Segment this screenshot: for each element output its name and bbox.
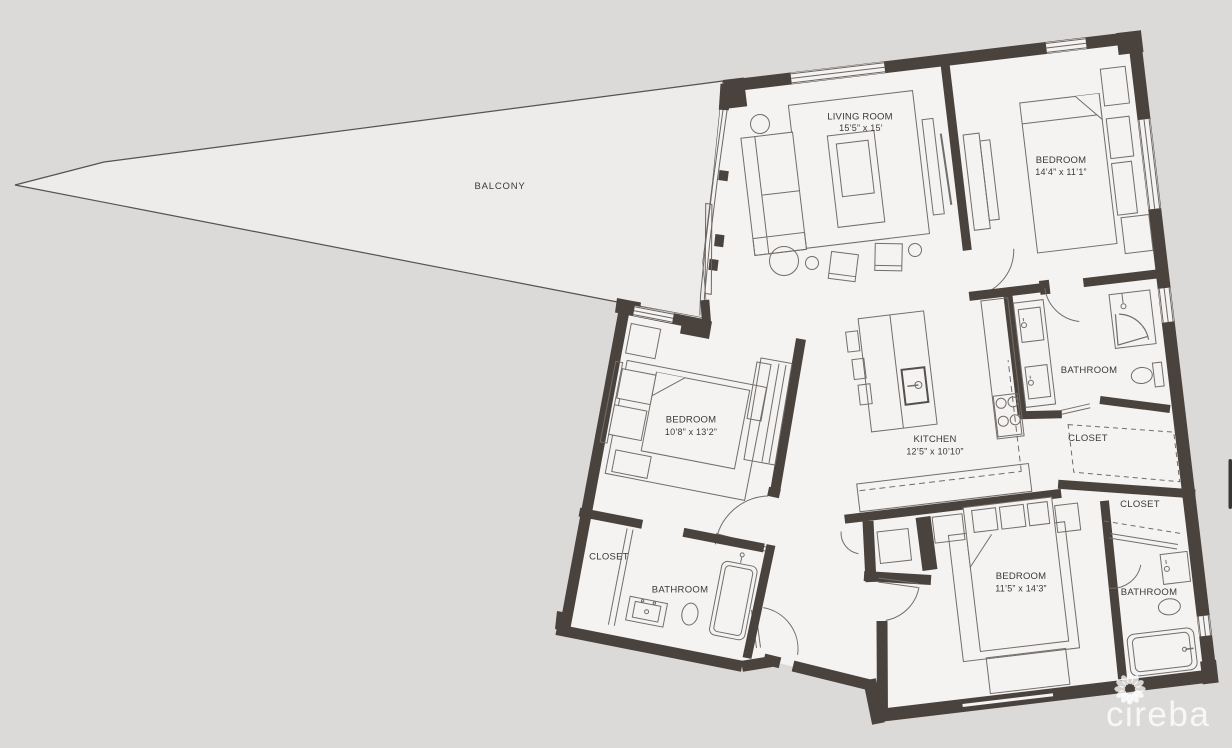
svg-text:BATHROOM: BATHROOM — [1061, 365, 1118, 376]
svg-text:LIVING ROOM: LIVING ROOM — [827, 112, 893, 123]
svg-text:BATHROOM: BATHROOM — [1121, 587, 1178, 598]
svg-text:CLOSET: CLOSET — [1068, 433, 1108, 444]
svg-text:BEDROOM: BEDROOM — [996, 571, 1047, 582]
svg-text:11’5” x 14’3”: 11’5” x 14’3” — [995, 584, 1046, 594]
svg-text:10’8” x 13’2”: 10’8” x 13’2” — [665, 427, 717, 437]
svg-text:12’5” x 10’10”: 12’5” x 10’10” — [906, 447, 963, 457]
svg-text:BATHROOM: BATHROOM — [652, 585, 709, 596]
svg-text:BALCONY: BALCONY — [474, 181, 525, 192]
svg-text:CLOSET: CLOSET — [1120, 499, 1160, 510]
svg-text:KITCHEN: KITCHEN — [913, 434, 956, 445]
svg-text:BEDROOM: BEDROOM — [1036, 155, 1087, 166]
svg-text:BEDROOM: BEDROOM — [666, 415, 717, 426]
svg-text:15’5” x 15’: 15’5” x 15’ — [839, 123, 883, 133]
svg-text:CLOSET: CLOSET — [589, 552, 629, 563]
svg-text:cireba: cireba — [1106, 695, 1210, 734]
svg-text:14’4” x 11’1”: 14’4” x 11’1” — [1035, 167, 1086, 177]
